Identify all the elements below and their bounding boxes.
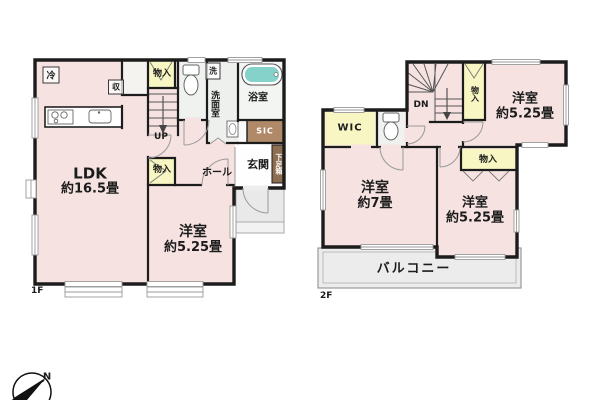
bedroom-ne-name: 洋室 xyxy=(496,92,554,107)
bedroom-se-name: 洋室 xyxy=(446,196,504,211)
washbasin-icon xyxy=(227,121,238,137)
toilet-icon-2f xyxy=(383,113,399,140)
toilet-icon-1f xyxy=(183,65,199,95)
washer-label: 洗 xyxy=(206,63,221,80)
closet-lower-label-1f: 物入 xyxy=(153,165,171,175)
closet-by-stairs-label: 物入 xyxy=(470,86,479,102)
bedroom-1f-size: 約5.25畳 xyxy=(164,241,222,256)
ldk-name: LDK xyxy=(61,165,119,182)
bathtub-icon xyxy=(242,64,282,85)
shoe-cabinet-label: 下足箱 xyxy=(274,154,282,175)
bedroom-west-label: 洋室 約7畳 xyxy=(357,181,392,211)
bedroom-1f-label: 洋室 約5.25畳 xyxy=(164,225,222,255)
closet-upper-label-1f: 物入 xyxy=(153,69,171,79)
floor-plan-drawing xyxy=(0,0,600,400)
stairs-up-label: UP xyxy=(154,132,168,142)
floor-plan-page: 冷 収 物入 UP 物入 洗 洗面室 浴室 SIC 玄関 下足箱 ホール LDK… xyxy=(0,0,600,400)
stairs-dn-label: DN xyxy=(413,100,428,110)
balcony-label: バルコニー xyxy=(377,263,452,278)
bedroom-se-size: 約5.25畳 xyxy=(446,211,504,226)
bedroom-ne-label: 洋室 約5.25畳 xyxy=(496,92,554,121)
washroom-label: 洗面室 xyxy=(209,91,219,118)
entrance-porch xyxy=(236,188,284,233)
refrigerator-label: 冷 xyxy=(43,67,60,84)
bedroom-1f-name: 洋室 xyxy=(164,225,222,241)
storage-shu-label: 収 xyxy=(108,80,124,95)
sic-label: SIC xyxy=(256,128,274,137)
compass-north-label: N xyxy=(43,371,51,382)
bedroom-west-name: 洋室 xyxy=(357,181,392,197)
bedroom-se-label: 洋室 約5.25畳 xyxy=(446,196,504,225)
bedroom-west-size: 約7畳 xyxy=(357,197,392,212)
floor1-label: 1F xyxy=(31,286,43,296)
bathroom-label: 浴室 xyxy=(248,92,268,103)
ldk-room-label: LDK 約16.5畳 xyxy=(61,165,119,196)
kitchen-sink-icon xyxy=(89,110,111,123)
kitchen-counter xyxy=(45,107,122,127)
hall-label: ホール xyxy=(202,167,232,178)
bedroom-ne-size: 約5.25畳 xyxy=(496,107,554,122)
floor2-label: 2F xyxy=(320,291,332,301)
closet-south-label: 物入 xyxy=(479,155,497,165)
ldk-size: 約16.5畳 xyxy=(61,182,119,197)
wic-label: WIC xyxy=(337,122,362,133)
entrance-label: 玄関 xyxy=(247,159,269,171)
